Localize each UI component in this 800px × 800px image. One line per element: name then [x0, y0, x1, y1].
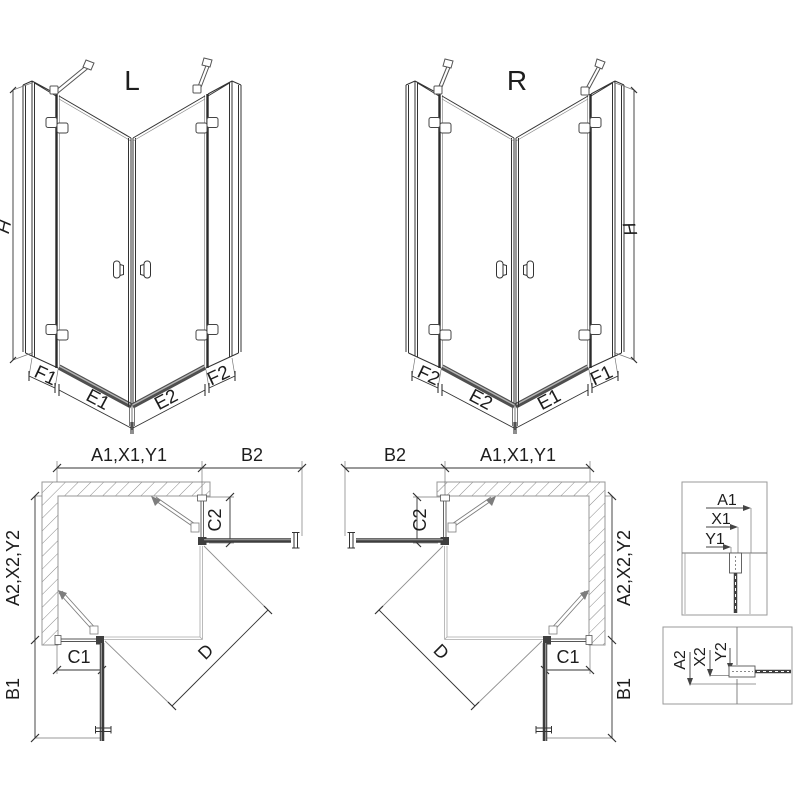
- seg-label-e1-left: E1: [82, 385, 112, 414]
- variant-label-right: R: [507, 65, 527, 96]
- detail-label-a2: A2: [672, 650, 689, 670]
- dim-b1-right: B1: [614, 678, 634, 700]
- dim-c2-left: C2: [205, 508, 225, 531]
- seg-label-e2-left: E2: [151, 385, 181, 414]
- technical-drawing-page: L H F1 E1 E2 F2 R H F2 E2 E1 F1 A1,X1,Y1…: [0, 0, 800, 800]
- dim-b1-left: B1: [3, 678, 23, 700]
- dim-a1x1y1-left: A1,X1,Y1: [91, 445, 167, 465]
- detail-label-a1: A1: [717, 492, 737, 509]
- dim-c2-right: C2: [410, 508, 430, 531]
- dim-d-left: D: [194, 640, 217, 663]
- iso-view-left: L H F1 E1 E2 F2: [0, 58, 241, 434]
- detail-label-x1: X1: [711, 511, 731, 528]
- seg-label-e2-right: E2: [465, 385, 495, 414]
- dim-b2-right: B2: [384, 445, 406, 465]
- detail-view-top: A1 X1 Y1: [682, 482, 767, 615]
- dim-d-right: D: [430, 640, 453, 663]
- arrow-a2: [687, 678, 693, 686]
- detail-label-y1: Y1: [705, 531, 725, 548]
- dim-b2-left: B2: [241, 445, 263, 465]
- detail-label-x2: X2: [692, 647, 709, 667]
- variant-label-left: L: [124, 65, 140, 96]
- arrow-x1: [730, 524, 738, 530]
- iso-view-right: R H F2 E2 E1 F1: [406, 59, 641, 434]
- detail-label-y2: Y2: [713, 642, 730, 662]
- seg-label-e1-right: E1: [534, 385, 564, 414]
- dim-c1-right: C1: [556, 647, 579, 667]
- dim-a2x2y2-left: A2,X2,Y2: [3, 530, 23, 606]
- arrow-a1: [743, 505, 751, 511]
- wall-left-plan: [42, 482, 210, 645]
- detail-view-bottom: A2 X2 Y2: [663, 627, 792, 704]
- wall-right-plan: [437, 482, 605, 645]
- dim-c1-left: C1: [67, 647, 90, 667]
- shower-enclosure-drawing: L H F1 E1 E2 F2 R H F2 E2 E1 F1 A1,X1,Y1…: [0, 0, 800, 800]
- dim-a2x2y2-right: A2,X2,Y2: [614, 530, 634, 606]
- height-label-right: H: [619, 220, 641, 238]
- dim-a1x1y1-right: A1,X1,Y1: [480, 445, 556, 465]
